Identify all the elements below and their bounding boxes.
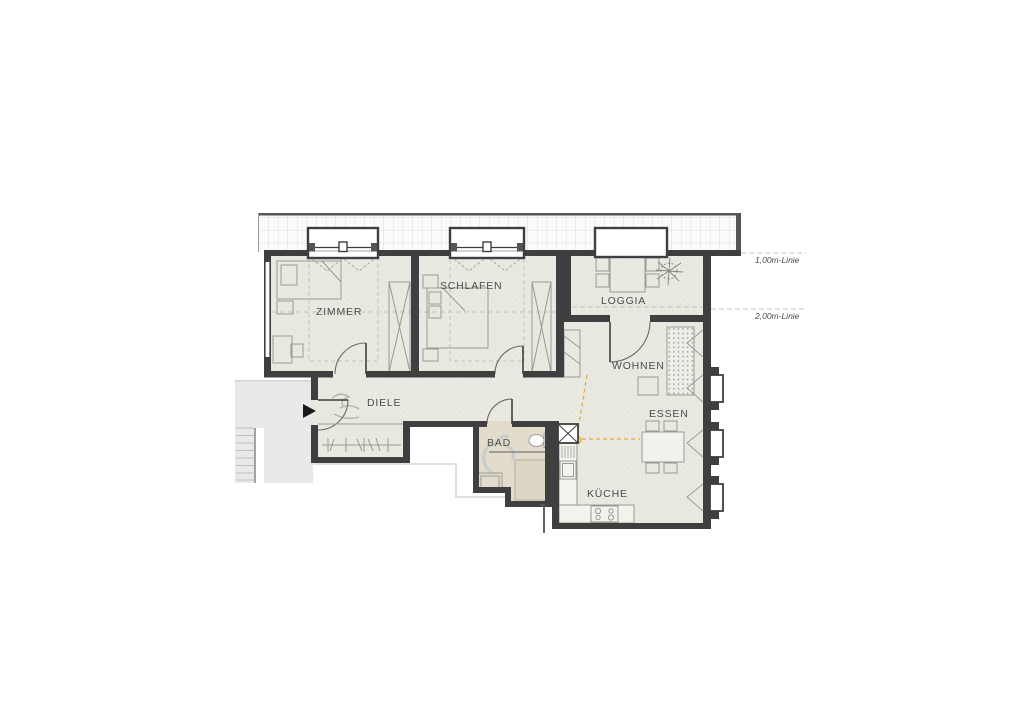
room-label-essen: ESSEN: [649, 408, 689, 420]
floor-plan-drawing: ZIMMER SCHLAFEN LOGGIA WOHNEN ESSEN KÜCH…: [0, 0, 1024, 724]
window-box: [710, 430, 723, 457]
kitchen-counter-bottom: [559, 505, 634, 523]
label-1m-linie: 1,00m-Linie: [755, 255, 800, 265]
room-diele-floor: [311, 377, 564, 421]
window-left-wall: [266, 262, 270, 357]
room-label-kueche: KÜCHE: [587, 488, 628, 500]
floor-plan-canvas: ZIMMER SCHLAFEN LOGGIA WOHNEN ESSEN KÜCH…: [0, 0, 1024, 724]
room-label-zimmer: ZIMMER: [316, 306, 362, 318]
dining-table: [642, 432, 684, 462]
shower: [515, 460, 549, 500]
room-label-diele: DIELE: [367, 397, 401, 409]
room-label-bad: BAD: [487, 437, 511, 449]
room-label-schlafen: SCHLAFEN: [440, 280, 502, 292]
toilet: [529, 435, 544, 447]
stairwell: [235, 380, 313, 483]
room-label-loggia: LOGGIA: [601, 295, 646, 307]
shaft: [558, 424, 578, 443]
room-loggia-floor: [564, 252, 711, 322]
window-box: [710, 375, 723, 402]
room-label-wohnen: WOHNEN: [612, 360, 665, 372]
loggia-terrace-opening: [595, 228, 667, 257]
sofa: [667, 327, 694, 395]
wardrobe-niche-floor: [311, 421, 410, 463]
label-2m-linie: 2,00m-Linie: [754, 311, 800, 321]
window-box: [710, 484, 723, 511]
section-marker: [540, 505, 544, 533]
height-line-labels: 1,00m-Linie 2,00m-Linie: [754, 255, 800, 321]
